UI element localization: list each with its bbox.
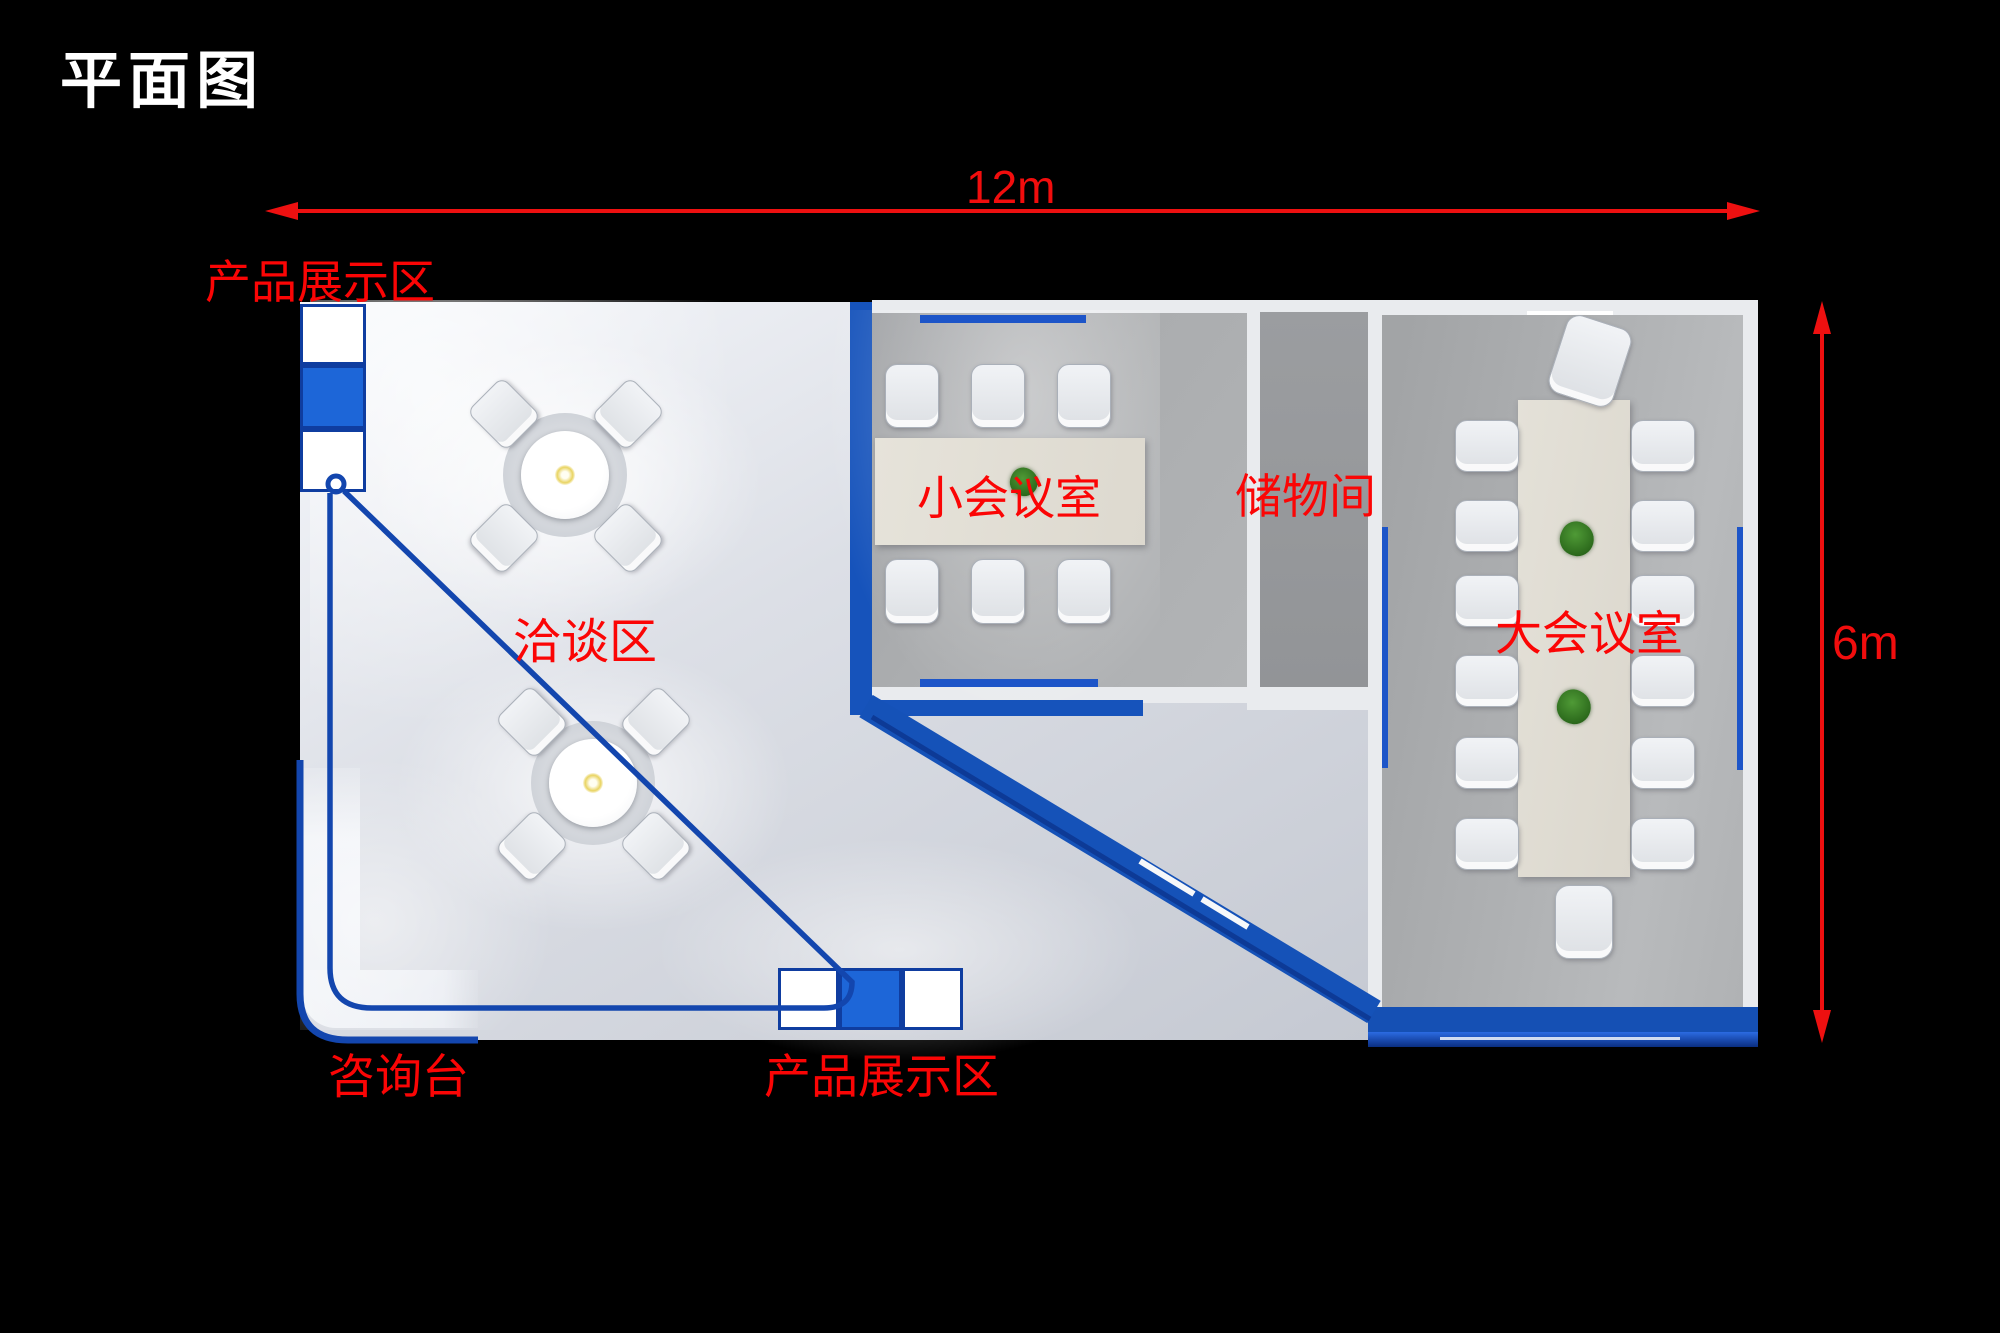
label-small-meeting-room: 小会议室 — [917, 462, 1101, 528]
diagonal-partition-edge — [872, 717, 1370, 1019]
partition-overlay — [300, 300, 1758, 1047]
label-information-desk: 咨询台 — [328, 1038, 469, 1107]
floor-plan-figure: 平面图 12m 6m — [0, 0, 2000, 1333]
diagonal-partition-wall — [866, 706, 1374, 1012]
arrowhead-right — [1727, 202, 1760, 220]
height-dimension-label: 6m — [1832, 616, 1899, 671]
label-negotiation-area: 洽谈区 — [513, 602, 657, 672]
corner-edge-line — [300, 760, 478, 1040]
width-dimension-label: 12m — [966, 160, 1055, 214]
arrowhead-up — [1813, 301, 1831, 334]
negotiation-boundary-line — [330, 491, 852, 1008]
page-title: 平面图 — [60, 30, 264, 120]
height-arrow — [1813, 301, 1831, 1043]
label-large-meeting-room: 大会议室 — [1495, 595, 1683, 664]
label-storage-room: 储物间 — [1235, 458, 1376, 527]
arrowhead-left — [265, 202, 298, 220]
floor-plan — [300, 300, 1758, 1047]
arrowhead-down — [1813, 1010, 1831, 1043]
label-product-display-top: 产品展示区 — [205, 246, 435, 312]
label-product-display-bottom: 产品展示区 — [764, 1038, 999, 1107]
boundary-line-loop — [328, 476, 344, 492]
